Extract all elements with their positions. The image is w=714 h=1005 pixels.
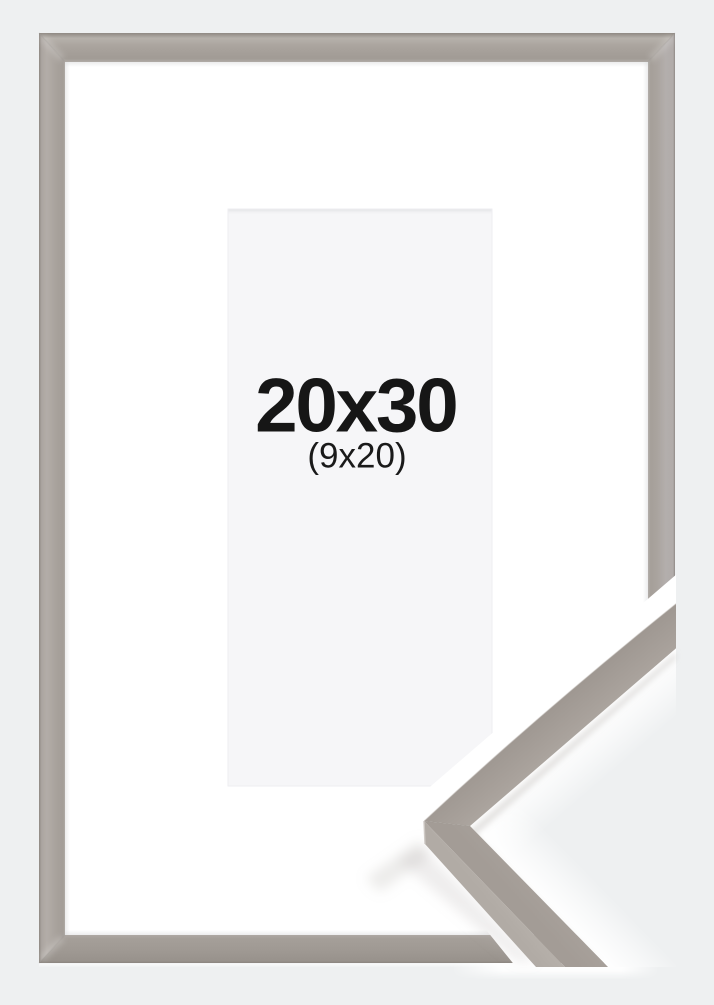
svg-text:(9x20): (9x20)	[307, 436, 406, 475]
